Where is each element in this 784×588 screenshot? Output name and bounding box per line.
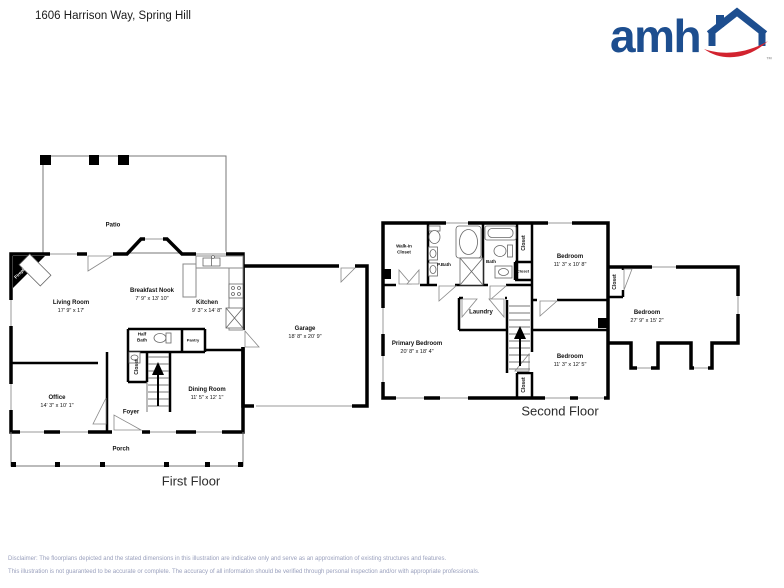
room-label-living-room: Living Room 17' 9" x 17' (53, 300, 89, 314)
front-door-swing (114, 415, 141, 430)
room-label-pantry: Pantry (187, 338, 199, 343)
garage-side-door-swing (341, 268, 355, 282)
room-label-walk-in-closet: Walk-In Closet (390, 243, 418, 254)
patio-door-swing (88, 256, 112, 271)
first-floor-stairs (147, 357, 169, 412)
disclaimer-line-2: This illustration is not guaranteed to b… (8, 569, 480, 575)
disclaimer-line-1: Disclaimer: The floorplans depicted and … (8, 556, 446, 562)
room-label-bedroom-right: Bedroom 27' 9" x 15' 2" (630, 310, 663, 324)
breakfast-counter (183, 264, 196, 297)
room-label-bedroom-top: Bedroom 11' 3" x 10' 8" (554, 254, 587, 268)
wing-closet-door-swing (624, 269, 632, 290)
fireplace-icon: Fireplace (13, 254, 51, 288)
patio-post (89, 155, 99, 165)
room-label-laundry: Laundry (469, 309, 493, 317)
room-label-half-bath: Half Bath (134, 331, 150, 342)
room-label-office: Office 14' 3" x 10' 1" (40, 395, 73, 409)
room-label-patio: Patio (106, 222, 121, 230)
walk-in-closet-door-swing (407, 270, 419, 284)
floorplan-drawing: Fireplace (0, 0, 784, 588)
office-door-swing (93, 398, 106, 424)
room-label-kitchen: Kitchen 9' 3" x 14' 8" (192, 300, 222, 314)
pbath-toilet (429, 231, 440, 244)
room-label-breakfast-nook: Breakfast Nook 7' 9" x 13' 10" (130, 288, 174, 302)
second-floor-fixtures (429, 226, 517, 285)
room-label-dining-room: Dining Room 11' 5" x 12' 1" (188, 387, 225, 401)
half-bath-toilet-tank (166, 333, 171, 343)
room-label-pbath: P.Bath (437, 262, 451, 268)
room-label-closet: Closet (612, 274, 618, 289)
room-label-bath: Bath (486, 259, 496, 265)
patio-post (40, 155, 51, 165)
room-label-foyer: Foyer (123, 409, 139, 417)
room-label-porch: Porch (112, 446, 129, 454)
room-label-bedroom-bottom: Bedroom 11' 3" x 12' 5" (554, 354, 587, 368)
room-label-closet: Closet (517, 269, 529, 274)
room-label-closet: Closet (521, 377, 527, 392)
garage-entry-door-swing (245, 331, 259, 347)
pbath-door-swing (439, 286, 456, 301)
second-floor-caption: Second Floor (521, 404, 598, 419)
room-label-closet: Closet (134, 359, 140, 374)
room-label-closet: Closet (521, 235, 527, 250)
bath-toilet-tank (508, 245, 513, 257)
room-label-garage: Garage 18' 8" x 20' 9" (288, 326, 321, 340)
bath-toilet (494, 246, 506, 257)
first-floor-caption: First Floor (162, 474, 221, 489)
room-label-primary-bedroom: Primary Bedroom 20' 8" x 18' 4" (392, 341, 442, 355)
patio-post (118, 155, 129, 165)
bedroom-door-swing (540, 301, 557, 316)
floorplan-page: 1606 Harrison Way, Spring Hill amh ™ (0, 0, 784, 588)
kitchen-stove (229, 284, 243, 298)
half-bath-toilet (154, 334, 166, 343)
first-floor-fixtures (129, 256, 243, 364)
